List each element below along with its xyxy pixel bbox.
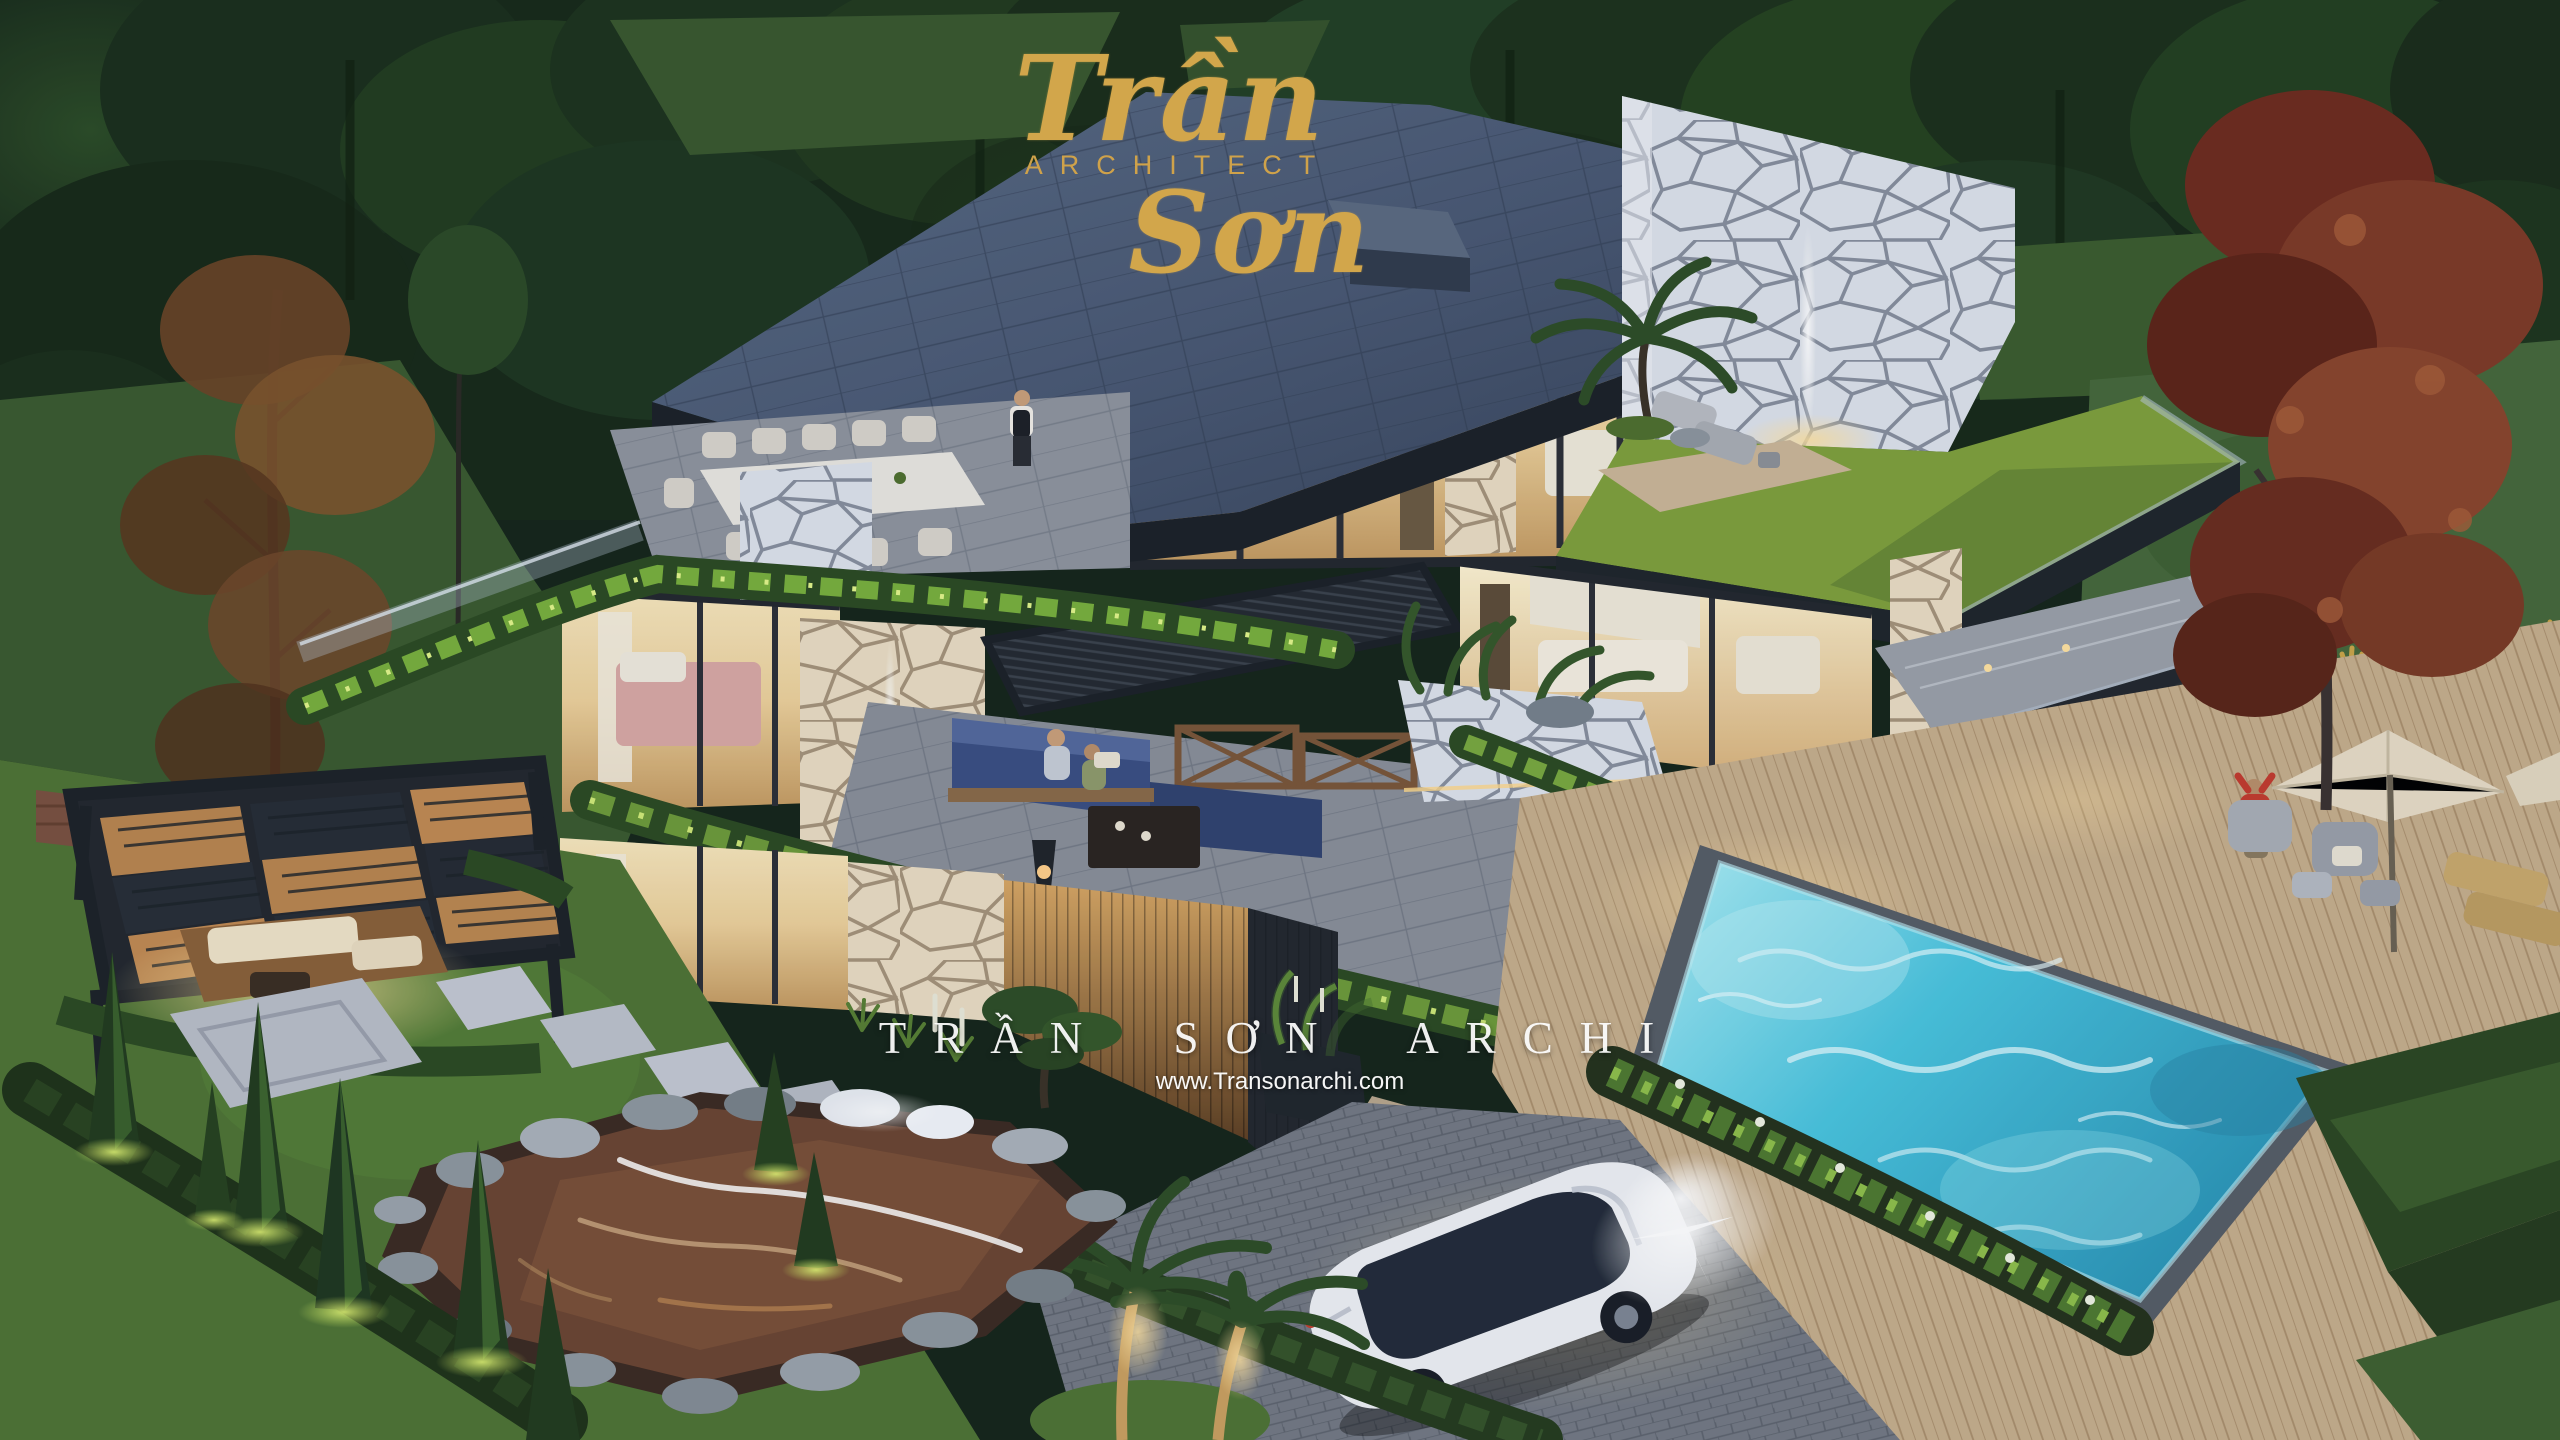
dusk-tint: [0, 0, 2560, 1440]
scene-canvas: [0, 0, 2560, 1440]
architectural-render: Trần ARCHITECT Sơn TRẦN SƠN ARCHI www.Tr…: [0, 0, 2560, 1440]
